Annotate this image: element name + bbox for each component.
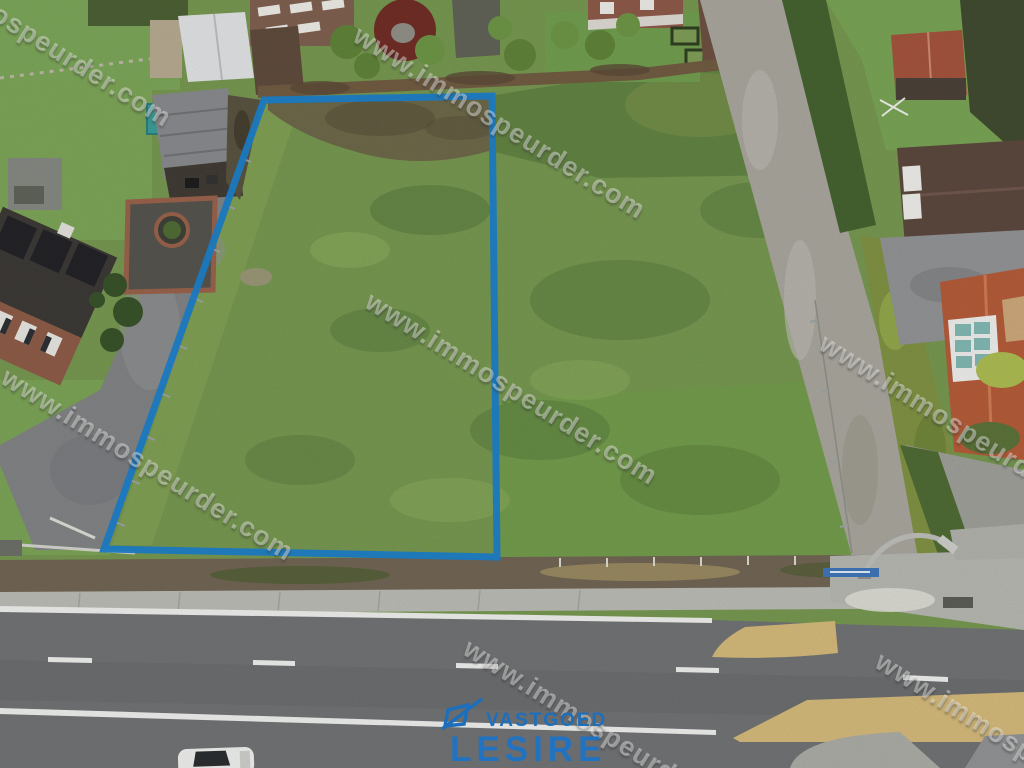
photo-grain <box>0 0 1024 768</box>
aerial-photo: www.immospeurder.com www.immospeurder.co… <box>0 0 1024 768</box>
aerial-scene <box>0 0 1024 768</box>
